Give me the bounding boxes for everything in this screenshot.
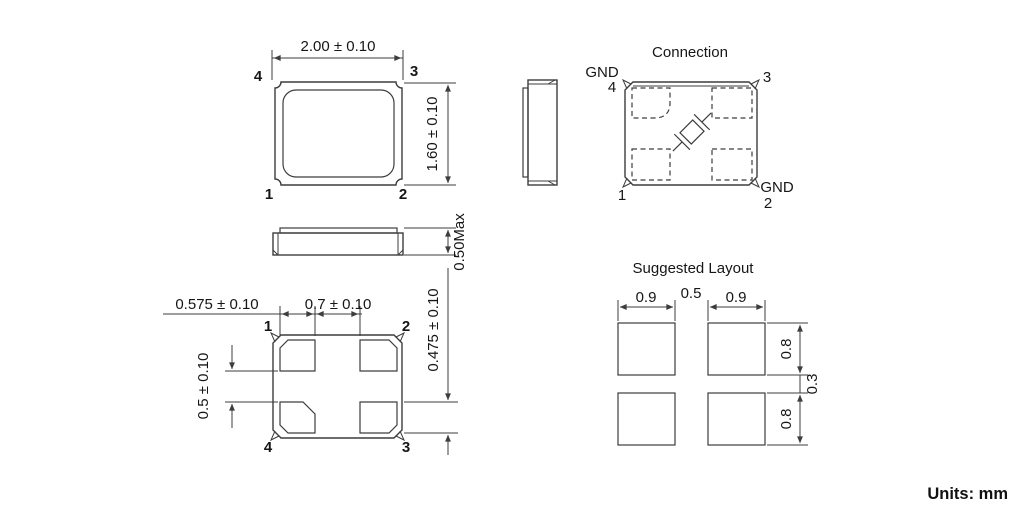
layout-pad-height-top: 0.8: [778, 339, 795, 360]
connection-diagram: Connection GND 4 3 1 GND 2: [585, 44, 794, 212]
gnd-label-bottom: GND: [760, 179, 794, 196]
pad-2-dashed: [712, 149, 752, 180]
pin-label-2: 2: [764, 195, 772, 212]
package-outline: [275, 82, 402, 185]
pin-label-2: 2: [402, 318, 410, 335]
connection-title: Connection: [652, 44, 728, 61]
layout-gap-horizontal: 0.5: [681, 285, 702, 302]
pad-1-dashed: [632, 149, 670, 180]
side-view-height-dim: 0.50Max: [451, 213, 468, 271]
pad-1: [280, 340, 315, 371]
pad-4-dashed: [632, 88, 670, 118]
corner-tick: [398, 250, 403, 255]
suggested-layout: Suggested Layout 0.9 0.5 0.9 0.8 0.3 0.8: [618, 260, 821, 445]
pad-height-dim: 0.475 ± 0.10: [425, 288, 442, 371]
package-body: [273, 233, 403, 255]
lid-outline: [283, 90, 394, 177]
datasheet-drawing: 2.00 ± 0.10 1.60 ± 0.10 4 3 1 2 Connecti…: [0, 0, 1021, 520]
layout-pad-bottom-left: [618, 393, 675, 445]
corner-tick: [273, 250, 278, 255]
package-lid: [280, 228, 397, 233]
pin-label-2: 2: [399, 186, 407, 203]
package-lid: [523, 88, 528, 177]
footer: Units: mm: [927, 485, 1008, 503]
layout-title: Suggested Layout: [633, 260, 755, 277]
layout-pad-top-right: [708, 323, 765, 375]
bottom-view: 0.575 ± 0.10 0.7 ± 0.10 0.5 ± 0.10 0.475…: [163, 268, 458, 456]
crystal-body: [680, 120, 704, 144]
pin-label-3: 3: [763, 69, 771, 86]
pad-gap-dim: 0.7 ± 0.10: [305, 296, 372, 313]
top-view: 2.00 ± 0.10 1.60 ± 0.10 4 3 1 2: [254, 38, 456, 203]
package-outline: [625, 82, 757, 185]
pin-label-4: 4: [254, 68, 263, 85]
top-view-height-dim: 1.60 ± 0.10: [424, 97, 441, 172]
pin-label-1: 1: [264, 318, 272, 335]
end-view: [523, 80, 557, 185]
pad-2: [360, 340, 397, 371]
pin-label-4: 4: [608, 79, 616, 96]
pin-label-3: 3: [402, 439, 410, 456]
crystal-lead: [673, 142, 682, 151]
datasheet-page: 2.00 ± 0.10 1.60 ± 0.10 4 3 1 2 Connecti…: [0, 0, 1021, 520]
pad-width-dim: 0.575 ± 0.10: [175, 296, 258, 313]
pad-vgap-dim: 0.5 ± 0.10: [195, 353, 212, 420]
layout-pad-width-left: 0.9: [636, 289, 657, 306]
package-body: [528, 80, 557, 185]
side-view: 0.50Max: [273, 213, 468, 271]
pin-label-1: 1: [265, 186, 273, 203]
layout-pad-width-right: 0.9: [726, 289, 747, 306]
layout-pad-height-bottom: 0.8: [778, 409, 795, 430]
pin-label-4: 4: [264, 439, 273, 456]
pin-label-1: 1: [618, 187, 626, 204]
layout-gap-vertical: 0.3: [804, 374, 821, 395]
top-view-width-dim: 2.00 ± 0.10: [301, 38, 376, 55]
crystal-lead: [702, 113, 711, 122]
package-outline: [273, 335, 402, 438]
crystal-symbol: [665, 105, 719, 159]
layout-pad-bottom-right: [708, 393, 765, 445]
pad-4-chamfered: [280, 402, 315, 433]
units-note: Units: mm: [927, 485, 1008, 503]
pad-3: [360, 402, 397, 433]
layout-pad-top-left: [618, 323, 675, 375]
pad-3-dashed: [712, 88, 752, 118]
pin-label-3: 3: [410, 63, 418, 80]
